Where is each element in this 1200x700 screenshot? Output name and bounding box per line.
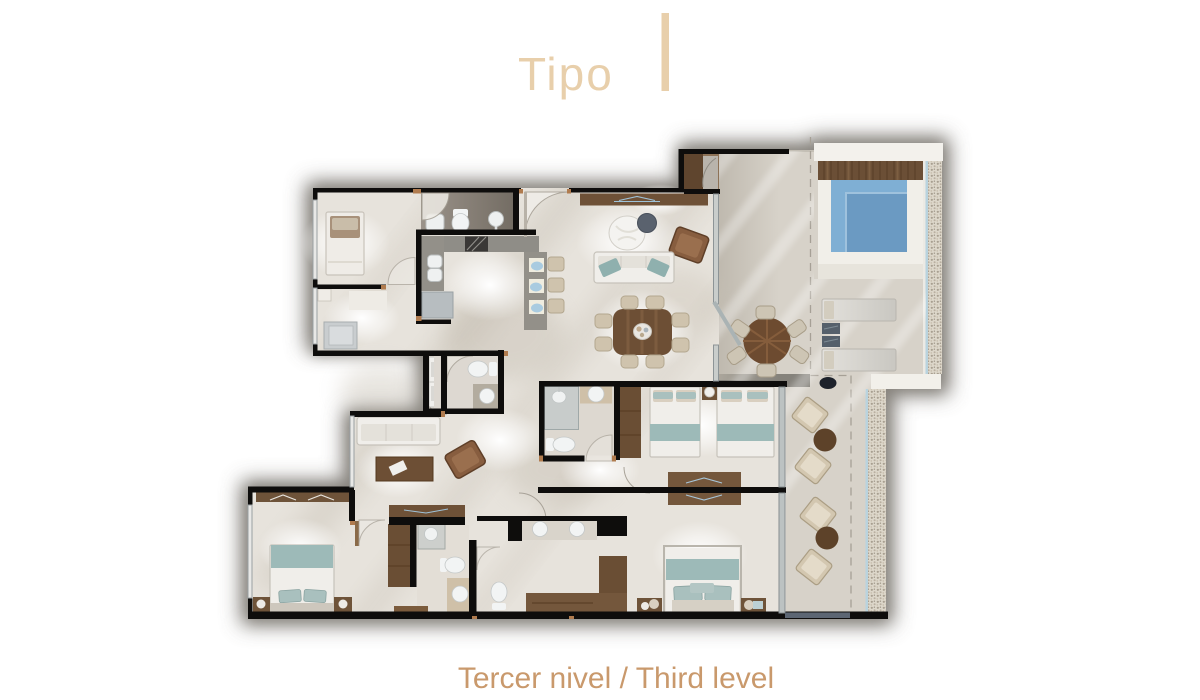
svg-text:Tercer nivel / Third level: Tercer nivel / Third level (458, 662, 774, 695)
svg-text:Tipo: Tipo (518, 48, 614, 100)
